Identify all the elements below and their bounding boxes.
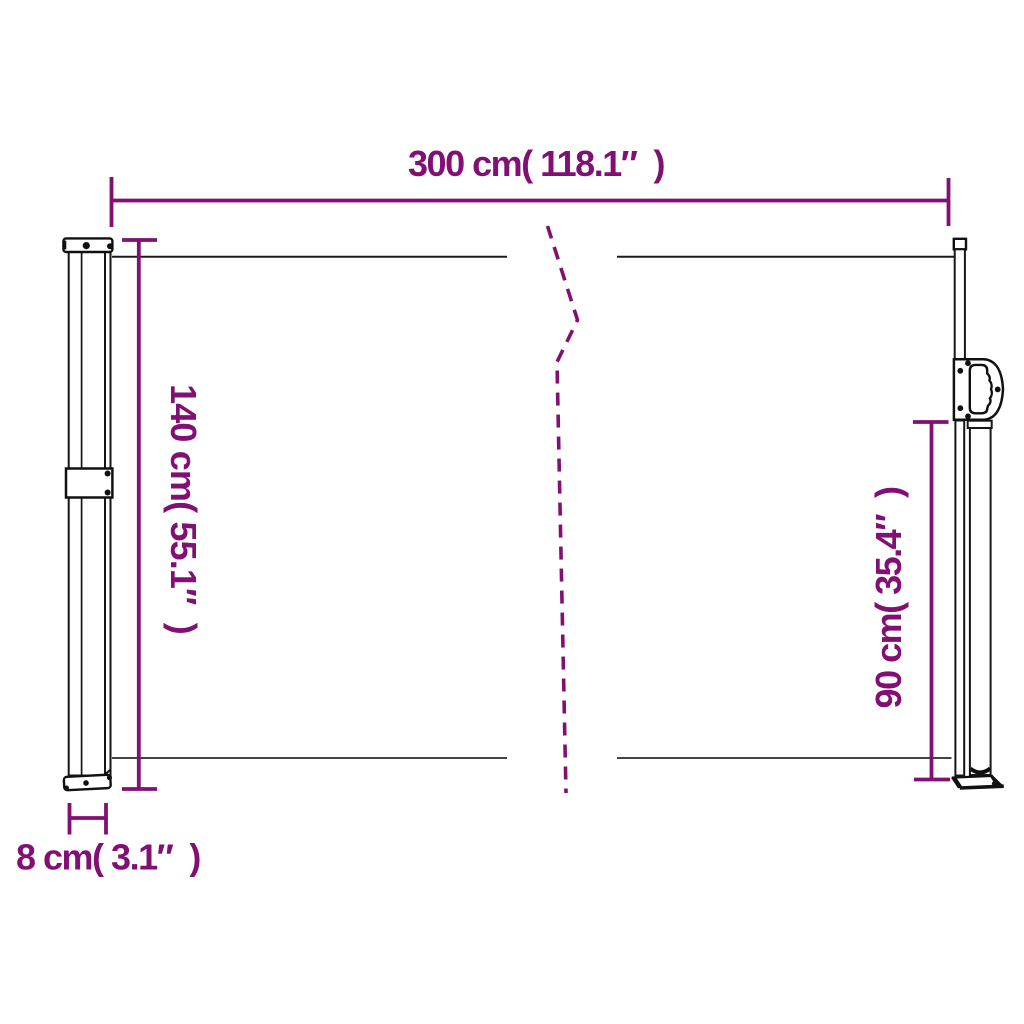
- svg-text:140 cm( 55.1″ ): 140 cm( 55.1″ ): [163, 384, 204, 634]
- svg-text:8 cm( 3.1″ ): 8 cm( 3.1″ ): [16, 837, 200, 878]
- svg-text:90 cm( 35.4″ ): 90 cm( 35.4″ ): [868, 487, 909, 708]
- svg-text:300 cm( 118.1″ ): 300 cm( 118.1″ ): [408, 143, 664, 184]
